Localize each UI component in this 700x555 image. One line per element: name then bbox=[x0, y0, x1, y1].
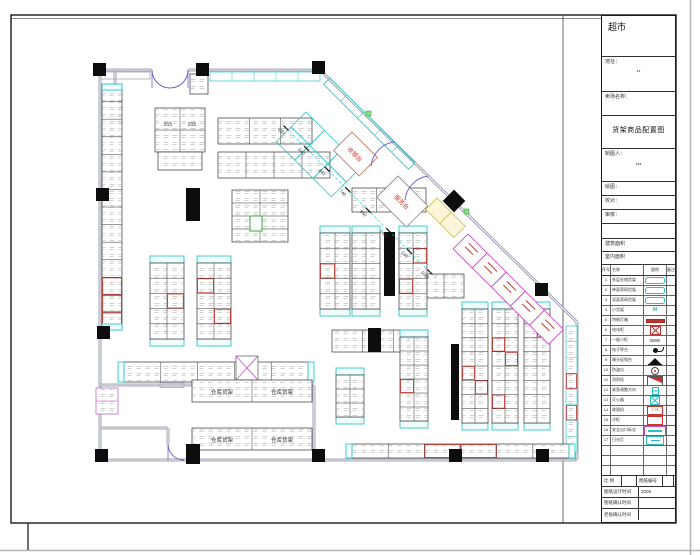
legend-cell: 10 bbox=[602, 366, 611, 375]
footer-row: 老板确认时间 bbox=[602, 509, 675, 520]
footer-cell: 图纸设计时间 bbox=[602, 487, 639, 497]
legend-cell: 12 bbox=[602, 386, 611, 395]
legend-cell bbox=[644, 396, 667, 405]
legend-cell: 4 bbox=[602, 306, 611, 315]
title-block-storename: 卖场名称： bbox=[602, 92, 675, 116]
legend-cell: M bbox=[644, 306, 667, 315]
legend-cell bbox=[602, 466, 611, 475]
sign-row-check: 校对： bbox=[602, 196, 675, 210]
legend-cell: 冷柜 bbox=[611, 416, 644, 425]
legend-row bbox=[602, 456, 675, 466]
legend-header: 序号名称图例备注 bbox=[602, 265, 675, 276]
door-sensor bbox=[464, 209, 469, 214]
legend-cell bbox=[644, 356, 667, 365]
footer-cell: 2008 bbox=[639, 487, 674, 497]
legend-cell bbox=[667, 446, 675, 455]
legend-symbol-dot-icon bbox=[653, 348, 658, 353]
legend-cell: 13 bbox=[602, 396, 611, 405]
footer-row: 图纸确认时间 bbox=[602, 498, 675, 509]
legend-cell: 3 bbox=[602, 296, 611, 305]
legend-symbol-circle-icon bbox=[651, 367, 659, 375]
legend-row: 11消防栓 bbox=[602, 376, 675, 386]
legend-cell bbox=[644, 326, 667, 335]
warehouse-label: 仓库货架 bbox=[211, 388, 234, 396]
legend-cell bbox=[667, 376, 675, 385]
legend-cell bbox=[667, 356, 675, 365]
legend-cell bbox=[644, 316, 667, 325]
column bbox=[96, 188, 109, 201]
legend-cell bbox=[667, 426, 675, 435]
legend-cell: 16 bbox=[602, 426, 611, 435]
legend-cell bbox=[644, 296, 667, 305]
legend-header-cell: 序号 bbox=[602, 265, 611, 275]
footer-cell: 图纸编号 bbox=[637, 476, 663, 486]
legend-table: 序号名称图例备注1多层仓储货架2单面背网货架3双面背网货架4小货架M5特制灯箱6… bbox=[602, 265, 675, 476]
legend-cell bbox=[667, 326, 675, 335]
legend-cell bbox=[611, 446, 644, 455]
building-area-label: 建筑面积 bbox=[605, 241, 625, 247]
entrance-double-door bbox=[152, 70, 188, 88]
audit-label: 审核： bbox=[605, 212, 620, 218]
legend-cell: 特制灯箱 bbox=[611, 316, 644, 325]
title-block: 超市 地址： ** 卖场名称： 货架商品配置图 制图人： *** 绘图： 校对：… bbox=[601, 15, 676, 523]
legend-row bbox=[602, 466, 675, 476]
column bbox=[451, 344, 459, 420]
sign-row-audit: 审核： bbox=[602, 210, 675, 224]
legend-cell: 消防栓 bbox=[611, 376, 644, 385]
legend-symbol-redbox-icon bbox=[647, 416, 663, 425]
legend-cell: 17 bbox=[602, 436, 611, 445]
legend-cell bbox=[667, 436, 675, 445]
title-block-drawing-title: 货架商品配置图 bbox=[602, 116, 675, 149]
legend-cell bbox=[667, 466, 675, 475]
gondola-run bbox=[400, 330, 428, 428]
legend-cell bbox=[644, 456, 667, 465]
legend-cell: 9 bbox=[602, 356, 611, 365]
footer-cell bbox=[622, 476, 637, 486]
title-block-empty bbox=[602, 224, 675, 239]
legend-cell bbox=[611, 466, 644, 475]
legend-row: 17日光灯 bbox=[602, 436, 675, 446]
legend-symbol-exit-icon bbox=[652, 387, 659, 395]
drafter-value: *** bbox=[602, 163, 675, 169]
legend-symbol-redbar-icon bbox=[646, 319, 665, 323]
legend-symbol-pill-icon bbox=[645, 277, 665, 284]
indoor-area-label: 室内面积 bbox=[605, 254, 625, 260]
legend-row: 2单面背网货架 bbox=[602, 286, 675, 296]
legend-cell: 1.75 bbox=[644, 406, 667, 415]
legend-symbol-tri-icon bbox=[649, 358, 661, 364]
gondola-run bbox=[197, 256, 231, 346]
legend-cell: 11 bbox=[602, 376, 611, 385]
legend-cell bbox=[644, 366, 667, 375]
legend-cell bbox=[667, 406, 675, 415]
right-wall-shelf bbox=[566, 326, 577, 452]
legend-cell: 灭火器 bbox=[611, 396, 644, 405]
column bbox=[535, 283, 548, 296]
legend-row: 6电冰柜 bbox=[602, 326, 675, 336]
legend-cell bbox=[667, 396, 675, 405]
sign-row-draw: 绘图： bbox=[602, 182, 675, 196]
legend-symbol-cyanbox-icon bbox=[646, 436, 664, 445]
column bbox=[536, 449, 549, 462]
legend-cell bbox=[667, 316, 675, 325]
unit-number: 915 bbox=[164, 122, 173, 128]
midleft-row bbox=[124, 362, 308, 382]
column bbox=[368, 328, 381, 352]
legend-row: 3双面背网货架 bbox=[602, 296, 675, 306]
legend-header-cell: 备注 bbox=[667, 265, 675, 275]
legend-cell: 15 bbox=[602, 416, 611, 425]
legend-row: 5特制灯箱 bbox=[602, 316, 675, 326]
legend-row bbox=[602, 446, 675, 456]
promo-pair bbox=[424, 274, 464, 298]
door-side-box bbox=[190, 74, 208, 94]
service-desk: 服务台 bbox=[377, 176, 428, 227]
address-value: ** bbox=[602, 70, 675, 76]
legend-cell bbox=[644, 386, 667, 395]
address-label: 地址： bbox=[605, 59, 620, 65]
cashier-desk: 收银台 bbox=[334, 132, 378, 176]
footer-cell bbox=[639, 509, 674, 520]
check-label: 校对： bbox=[605, 198, 620, 204]
legend-cell: 8 bbox=[602, 346, 611, 355]
legend-row: 16安全出口标志 bbox=[602, 426, 675, 436]
title-block-store: 超市 bbox=[602, 16, 675, 57]
door-sensor bbox=[366, 111, 371, 116]
column bbox=[97, 326, 110, 339]
legend-symbol-gray-icon bbox=[650, 339, 660, 342]
column bbox=[449, 449, 462, 462]
legend-header-cell: 图例 bbox=[644, 265, 667, 275]
column bbox=[384, 232, 395, 296]
legend-cell bbox=[667, 306, 675, 315]
legend-cell bbox=[667, 336, 675, 345]
gondola-run bbox=[150, 256, 184, 346]
legend-cell bbox=[644, 276, 667, 285]
legend-cell: 多层仓储货架 bbox=[611, 276, 644, 285]
green-column bbox=[250, 216, 262, 231]
top-wall-shelf bbox=[210, 72, 320, 81]
draw-label: 绘图： bbox=[605, 184, 620, 190]
storename-label: 卖场名称： bbox=[605, 94, 630, 100]
stair-text-marks bbox=[118, 96, 125, 128]
legend-cell bbox=[667, 346, 675, 355]
legend-cell: 6 bbox=[602, 326, 611, 335]
gondola-run bbox=[462, 302, 488, 430]
shelving bbox=[96, 72, 577, 458]
warehouse-door bbox=[160, 383, 184, 388]
footer-cell: 老板确认时间 bbox=[602, 509, 639, 520]
room-door bbox=[168, 444, 184, 460]
legend-cell: 小货架 bbox=[611, 306, 644, 315]
legend-row: 7一般小柜 bbox=[602, 336, 675, 346]
legend-cell bbox=[644, 426, 667, 435]
legend-symbol-pill-icon bbox=[645, 287, 665, 294]
legend-cell: 日光灯 bbox=[611, 436, 644, 445]
legend-header-cell: 名称 bbox=[611, 265, 644, 275]
legend-row: 4小货架M bbox=[602, 306, 675, 316]
legend-cell: 14 bbox=[602, 406, 611, 415]
warehouse-label: 仓库货架 bbox=[271, 436, 294, 444]
drafter-label: 制图人： bbox=[605, 151, 625, 157]
column bbox=[186, 188, 200, 221]
legend-cell: 1 bbox=[602, 276, 611, 285]
column bbox=[186, 444, 200, 464]
footer-cell bbox=[639, 498, 674, 508]
legend-row: 15冷柜 bbox=[602, 416, 675, 426]
gondola-run bbox=[492, 302, 518, 430]
title-block-drafter: 制图人： *** bbox=[602, 149, 675, 182]
floor-plan: 收银台服务台65064064074065014601301060仓库货架仓库货架… bbox=[0, 0, 700, 555]
legend-cell: 安全出口标志 bbox=[611, 426, 644, 435]
legend-row: 1多层仓储货架 bbox=[602, 276, 675, 286]
legend-symbol-pill-icon bbox=[645, 297, 665, 304]
legend-cell bbox=[644, 446, 667, 455]
title-block-address: 地址： ** bbox=[602, 57, 675, 92]
column bbox=[95, 449, 108, 462]
legend-symbol-cyanx-icon bbox=[650, 396, 660, 405]
column bbox=[312, 449, 325, 462]
title-block-footer: 比 例图纸编号图纸设计时间2008图纸确认时间老板确认时间 bbox=[602, 476, 675, 522]
legend-row: 12紧急疏散方向 bbox=[602, 386, 675, 396]
leftwall-magenta-box bbox=[96, 388, 118, 414]
unit-number: 915 bbox=[188, 122, 197, 128]
legend-cell bbox=[611, 456, 644, 465]
shelf-outline bbox=[210, 72, 320, 81]
legend-row: 9端头促销台 bbox=[602, 356, 675, 366]
legend-cell bbox=[667, 276, 675, 285]
legend-cell bbox=[667, 366, 675, 375]
legend-cell: 端头促销台 bbox=[611, 356, 644, 365]
legend-cell bbox=[644, 436, 667, 445]
legend-row: 14收银机1.75 bbox=[602, 406, 675, 416]
legend-cell: 电子秤台 bbox=[611, 346, 644, 355]
legend-cell bbox=[667, 296, 675, 305]
legend-cell bbox=[667, 456, 675, 465]
legend-cell bbox=[644, 466, 667, 475]
legend-cell bbox=[644, 416, 667, 425]
dimension-label: 740 bbox=[338, 188, 347, 197]
footer-cell: 图纸确认时间 bbox=[602, 498, 639, 508]
legend-symbol-flag-icon bbox=[648, 377, 662, 385]
legend-cell bbox=[602, 456, 611, 465]
legend-row: 10防盗仪 bbox=[602, 366, 675, 376]
footer-cell: 比 例 bbox=[602, 476, 622, 486]
promo-row bbox=[218, 152, 330, 178]
gondola-run bbox=[336, 368, 364, 424]
gondola-run bbox=[352, 226, 380, 316]
legend-cell bbox=[667, 386, 675, 395]
store-name: 超市 bbox=[602, 16, 675, 33]
footer-cell bbox=[663, 476, 674, 486]
legend-cell: 电冰柜 bbox=[611, 326, 644, 335]
legend-cell bbox=[644, 346, 667, 355]
legend-cell bbox=[644, 336, 667, 345]
legend-symbol-mgbox-icon bbox=[644, 426, 666, 435]
legend-cell: 7 bbox=[602, 336, 611, 345]
warehouse-label: 仓库货架 bbox=[211, 436, 234, 444]
legend-row: 13灭火器 bbox=[602, 396, 675, 406]
legend-cell bbox=[667, 286, 675, 295]
legend-cell: 单面背网货架 bbox=[611, 286, 644, 295]
legend-cell bbox=[667, 416, 675, 425]
drawing-title: 货架商品配置图 bbox=[602, 116, 675, 135]
column bbox=[196, 63, 209, 76]
area-row-building: 建筑面积 bbox=[602, 239, 675, 252]
legend-cell: 双面背网货架 bbox=[611, 296, 644, 305]
legend-cell: 一般小柜 bbox=[611, 336, 644, 345]
warehouse-label: 仓库货架 bbox=[271, 388, 294, 396]
legend-symbol-redx-icon bbox=[650, 326, 661, 335]
column bbox=[312, 61, 325, 74]
footer-row: 图纸设计时间2008 bbox=[602, 487, 675, 498]
legend-cell bbox=[644, 376, 667, 385]
gondola-run bbox=[320, 226, 350, 316]
legend-cell bbox=[644, 286, 667, 295]
legend-symbol-redbox-icon: 1.75 bbox=[647, 406, 663, 415]
area-row-indoor: 室内面积 bbox=[602, 252, 675, 265]
crossed-box bbox=[236, 356, 258, 380]
legend-row: 8电子秤台 bbox=[602, 346, 675, 356]
footer-scale-row: 比 例图纸编号 bbox=[602, 476, 675, 487]
block-915-base bbox=[158, 152, 202, 170]
drawing-sheet: 收银台服务台65064064074065014601301060仓库货架仓库货架… bbox=[0, 0, 700, 555]
legend-cell: 收银机 bbox=[611, 406, 644, 415]
legend-cell: 2 bbox=[602, 286, 611, 295]
block-915 bbox=[155, 108, 205, 152]
legend-cell: 5 bbox=[602, 316, 611, 325]
legend-cell: 紧急疏散方向 bbox=[611, 386, 644, 395]
legend-cell: 防盗仪 bbox=[611, 366, 644, 375]
legend-symbol-text-icon: M bbox=[653, 307, 658, 314]
column bbox=[93, 63, 106, 76]
legend-cell bbox=[602, 446, 611, 455]
